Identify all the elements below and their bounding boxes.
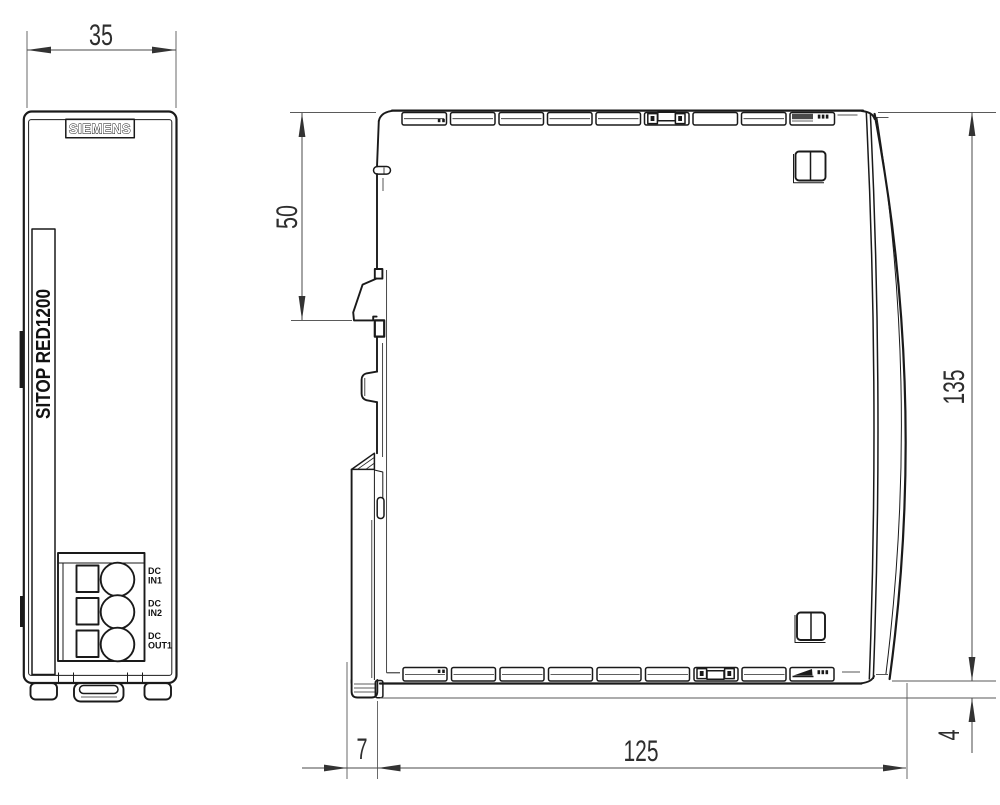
terminal-label: DC: [148, 599, 161, 609]
drawing-canvas: 35 SIEMENS SITOP RED1200 DC: [0, 0, 1000, 805]
side-cutouts: [794, 152, 826, 643]
arrowhead-right: [152, 47, 176, 54]
terminal-row-dc-in1: DC IN1: [77, 563, 163, 597]
terminal-label: DC: [148, 631, 161, 641]
product-label: SITOP RED1200: [32, 229, 55, 675]
front-top-corner: [862, 111, 875, 119]
foot-left: [31, 683, 58, 700]
bezel-line-1: [866, 113, 874, 680]
terminal-opening: [101, 595, 135, 629]
din-clip-slider: [80, 686, 119, 694]
arrowhead-top: [969, 112, 976, 136]
terminal-row-dc-out1: DC OUT1: [77, 628, 173, 662]
bottom-latch-detail: [793, 669, 829, 677]
screw-terminal: [77, 631, 99, 658]
latch-head: [352, 453, 375, 469]
arrowhead-bottom: [969, 657, 976, 681]
bottom-surface: [380, 668, 888, 684]
arrowhead-bottom: [299, 296, 306, 320]
front-face: [861, 111, 905, 683]
side-tab-lower: [20, 596, 24, 627]
dim-value-height: 135: [938, 370, 971, 405]
din-hook-upper: [375, 269, 383, 279]
terminal-row-dc-in2: DC IN2: [77, 595, 163, 629]
top-rail-slider-detail: [648, 112, 685, 123]
latch-knob: [362, 372, 377, 403]
bottom-bezel-ticks: [59, 673, 143, 683]
arrowhead-125-right: [883, 765, 906, 772]
arrowhead-7-right: [378, 765, 401, 772]
technical-drawing: 35 SIEMENS SITOP RED1200 DC: [0, 0, 1000, 805]
foot-right: [145, 683, 172, 700]
top-latch-detail: [792, 114, 828, 121]
screw-terminal: [77, 598, 99, 625]
dim-value-depth: 125: [624, 735, 659, 768]
arrowhead-7-left: [324, 765, 347, 772]
front-bottom-corner: [861, 676, 874, 683]
bottom-centerline-dashes: [842, 672, 888, 675]
dim-latch-protrusion: 4: [380, 698, 996, 753]
arrowhead-left: [27, 47, 51, 54]
back-pin: [374, 167, 391, 175]
bottom-vent-slots: [403, 668, 834, 682]
dim-value-width: 35: [89, 19, 113, 52]
terminal-opening: [101, 563, 135, 597]
dim-front-width: 35: [27, 19, 176, 108]
dim-depth-group: 7 125: [302, 662, 907, 779]
front-view: 35 SIEMENS SITOP RED1200 DC: [20, 19, 177, 702]
dim-value-latch-protrusion: 4: [933, 730, 966, 741]
screw-terminal: [77, 566, 99, 593]
terminal-label: OUT1: [148, 641, 172, 651]
terminal-label: IN2: [148, 608, 162, 618]
extension-lines: [878, 113, 996, 682]
din-rail-latch: [352, 453, 384, 698]
model-text: SITOP RED1200: [33, 289, 55, 419]
siemens-logo: SIEMENS: [66, 119, 135, 138]
brand-text: SIEMENS: [69, 122, 131, 137]
top-surface: [379, 111, 889, 125]
top-back-corner: [379, 111, 392, 121]
back-wall-upper: [377, 121, 379, 167]
dim-value-din-offset: 50: [271, 205, 304, 229]
arrowhead-top: [299, 113, 306, 137]
side-view: 50 135 4 7 125: [271, 111, 996, 779]
terminal-label: IN1: [148, 576, 162, 586]
side-tab-upper: [20, 331, 24, 388]
latch-pin: [377, 498, 384, 519]
dim-height: 135: [878, 112, 996, 681]
latch-foot: [352, 680, 378, 698]
bottom-rail-slider-detail: [697, 669, 734, 680]
dim-value-latch-extension: 7: [357, 733, 368, 766]
din-recess: [353, 279, 376, 321]
top-vent-slots: [402, 113, 835, 126]
terminal-label: DC: [148, 566, 161, 576]
top-centerline-dashes: [838, 115, 889, 118]
mounting-feet: [31, 683, 172, 702]
latch-step: [374, 470, 382, 498]
arrowhead-up: [969, 698, 976, 722]
din-hook-lower: [375, 320, 384, 336]
terminal-block: DC IN1 DC IN2 DC OUT1: [58, 553, 172, 661]
terminal-opening: [101, 628, 135, 662]
